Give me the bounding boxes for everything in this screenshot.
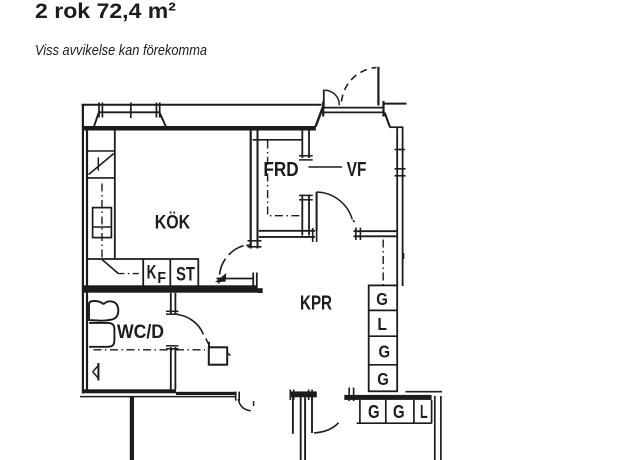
svg-text:G: G (379, 342, 391, 362)
svg-text:F: F (157, 270, 166, 287)
svg-text:KPR: KPR (300, 292, 332, 315)
svg-text:Viss avvikelse kan förekomma: Viss avvikelse kan förekomma (35, 43, 207, 59)
svg-text:G: G (376, 289, 388, 309)
svg-text:G: G (368, 402, 380, 422)
svg-text:K: K (147, 261, 157, 283)
svg-text:G: G (393, 402, 405, 422)
svg-text:2 rok 72,4 m²: 2 rok 72,4 m² (35, 0, 176, 23)
svg-text:L: L (377, 314, 387, 334)
svg-text:WC/D: WC/D (117, 321, 164, 343)
svg-text:G: G (377, 369, 389, 389)
svg-text:VF: VF (347, 158, 367, 181)
svg-text:KÖK: KÖK (155, 210, 191, 233)
svg-text:ST: ST (176, 265, 195, 286)
svg-text:L: L (420, 402, 428, 422)
svg-text:FRD: FRD (263, 158, 298, 181)
